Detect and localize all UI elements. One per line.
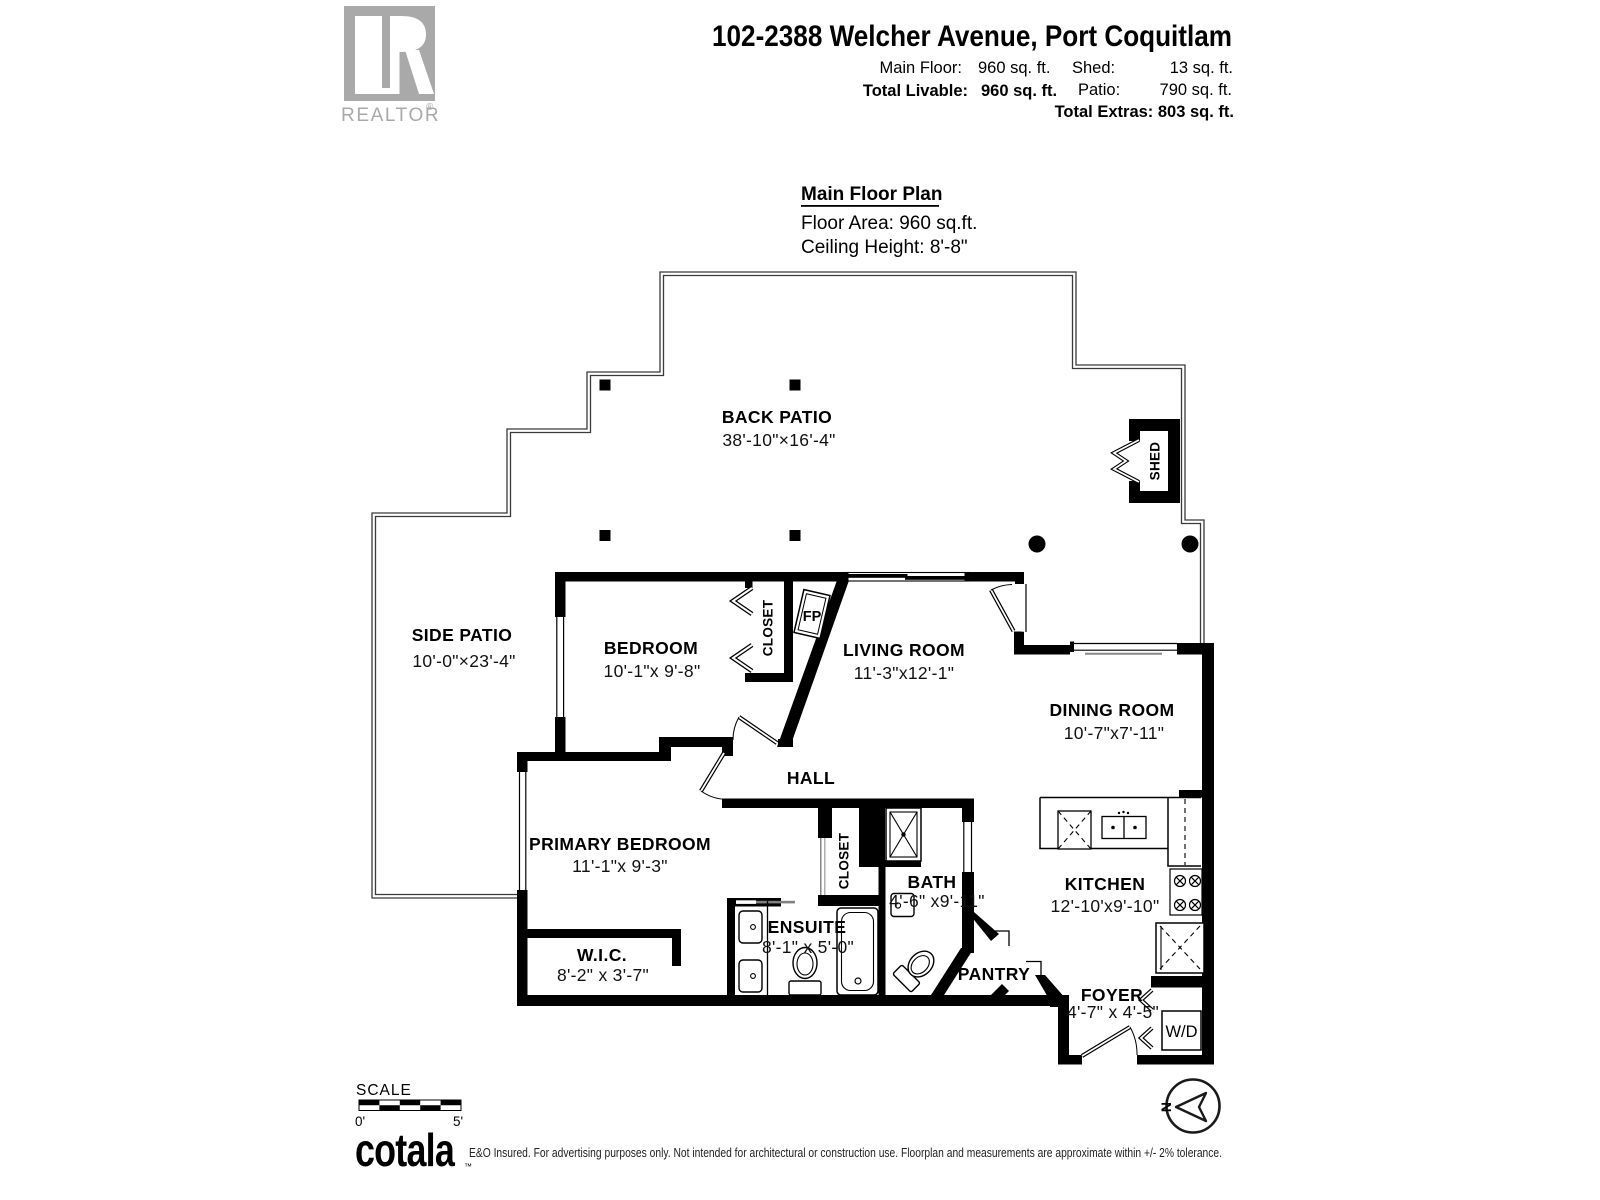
svg-text:12'-10'x9'-10": 12'-10'x9'-10" (1051, 896, 1160, 916)
svg-text:Floor Area: 960 sq.ft.: Floor Area: 960 sq.ft. (801, 213, 977, 234)
svg-text:HALL: HALL (787, 768, 835, 788)
svg-text:Total Extras: 803 sq. ft.: Total Extras: 803 sq. ft. (1055, 103, 1234, 121)
svg-text:E&O Insured. For advertising p: E&O Insured. For advertising purposes on… (469, 1146, 1222, 1160)
svg-text:N: N (1158, 1102, 1174, 1112)
svg-text:ENSUITE: ENSUITE (768, 917, 847, 937)
svg-text:11'-1"x 9'-3": 11'-1"x 9'-3" (572, 856, 668, 876)
svg-text:790 sq. ft.: 790 sq. ft. (1160, 81, 1232, 99)
svg-text:BEDROOM: BEDROOM (604, 638, 698, 658)
svg-text:Patio:: Patio: (1078, 81, 1120, 99)
svg-text:KITCHEN: KITCHEN (1065, 874, 1146, 894)
svg-text:W/D: W/D (1165, 1023, 1197, 1041)
svg-text:LIVING ROOM: LIVING ROOM (843, 640, 965, 660)
svg-text:CLOSET: CLOSET (761, 599, 776, 656)
svg-text:®: ® (426, 102, 434, 113)
svg-text:SHED: SHED (1148, 442, 1163, 481)
svg-text:™: ™ (464, 1162, 472, 1171)
svg-text:PRIMARY BEDROOM: PRIMARY BEDROOM (529, 834, 711, 854)
svg-text:4'-7" x 4'-5": 4'-7" x 4'-5" (1067, 1002, 1159, 1022)
svg-text:10'-7"x7'-11": 10'-7"x7'-11" (1064, 723, 1165, 743)
svg-text:Ceiling Height: 8'-8": Ceiling Height: 8'-8" (801, 237, 968, 258)
svg-text:13 sq. ft.: 13 sq. ft. (1170, 59, 1233, 77)
svg-text:FP: FP (803, 609, 822, 625)
svg-text:CLOSET: CLOSET (837, 832, 852, 889)
svg-text:8'-1" x 5'-0": 8'-1" x 5'-0" (762, 937, 854, 957)
svg-text:11'-3"x12'-1": 11'-3"x12'-1" (854, 663, 955, 683)
svg-text:Main Floor:: Main Floor: (879, 59, 962, 77)
svg-text:SCALE: SCALE (356, 1082, 412, 1099)
svg-text:BACK PATIO: BACK PATIO (722, 407, 832, 427)
svg-text:960 sq. ft.: 960 sq. ft. (978, 59, 1050, 77)
svg-text:Shed:: Shed: (1072, 59, 1115, 77)
svg-text:PANTRY: PANTRY (958, 964, 1030, 984)
svg-text:10'-0"×23'-4": 10'-0"×23'-4" (412, 651, 515, 671)
svg-text:960 sq. ft.: 960 sq. ft. (981, 82, 1057, 100)
svg-text:8'-2" x 3'-7": 8'-2" x 3'-7" (557, 965, 649, 985)
svg-text:W.I.C.: W.I.C. (577, 945, 627, 965)
svg-text:Total Livable:: Total Livable: (863, 82, 968, 100)
svg-text:4'-6" x9'-11": 4'-6" x9'-11" (889, 891, 985, 911)
svg-text:DINING ROOM: DINING ROOM (1050, 700, 1175, 720)
svg-text:38'-10"×16'-4": 38'-10"×16'-4" (722, 430, 835, 450)
svg-text:SIDE PATIO: SIDE PATIO (412, 625, 513, 645)
svg-text:5': 5' (453, 1114, 463, 1129)
svg-text:cotala: cotala (355, 1125, 456, 1176)
svg-text:BATH: BATH (908, 872, 957, 892)
svg-text:10'-1"x 9'-8": 10'-1"x 9'-8" (604, 661, 701, 681)
svg-text:102-2388 Welcher Avenue, Port: 102-2388 Welcher Avenue, Port Coquitlam (712, 20, 1232, 53)
svg-text:Main Floor Plan: Main Floor Plan (801, 184, 942, 205)
